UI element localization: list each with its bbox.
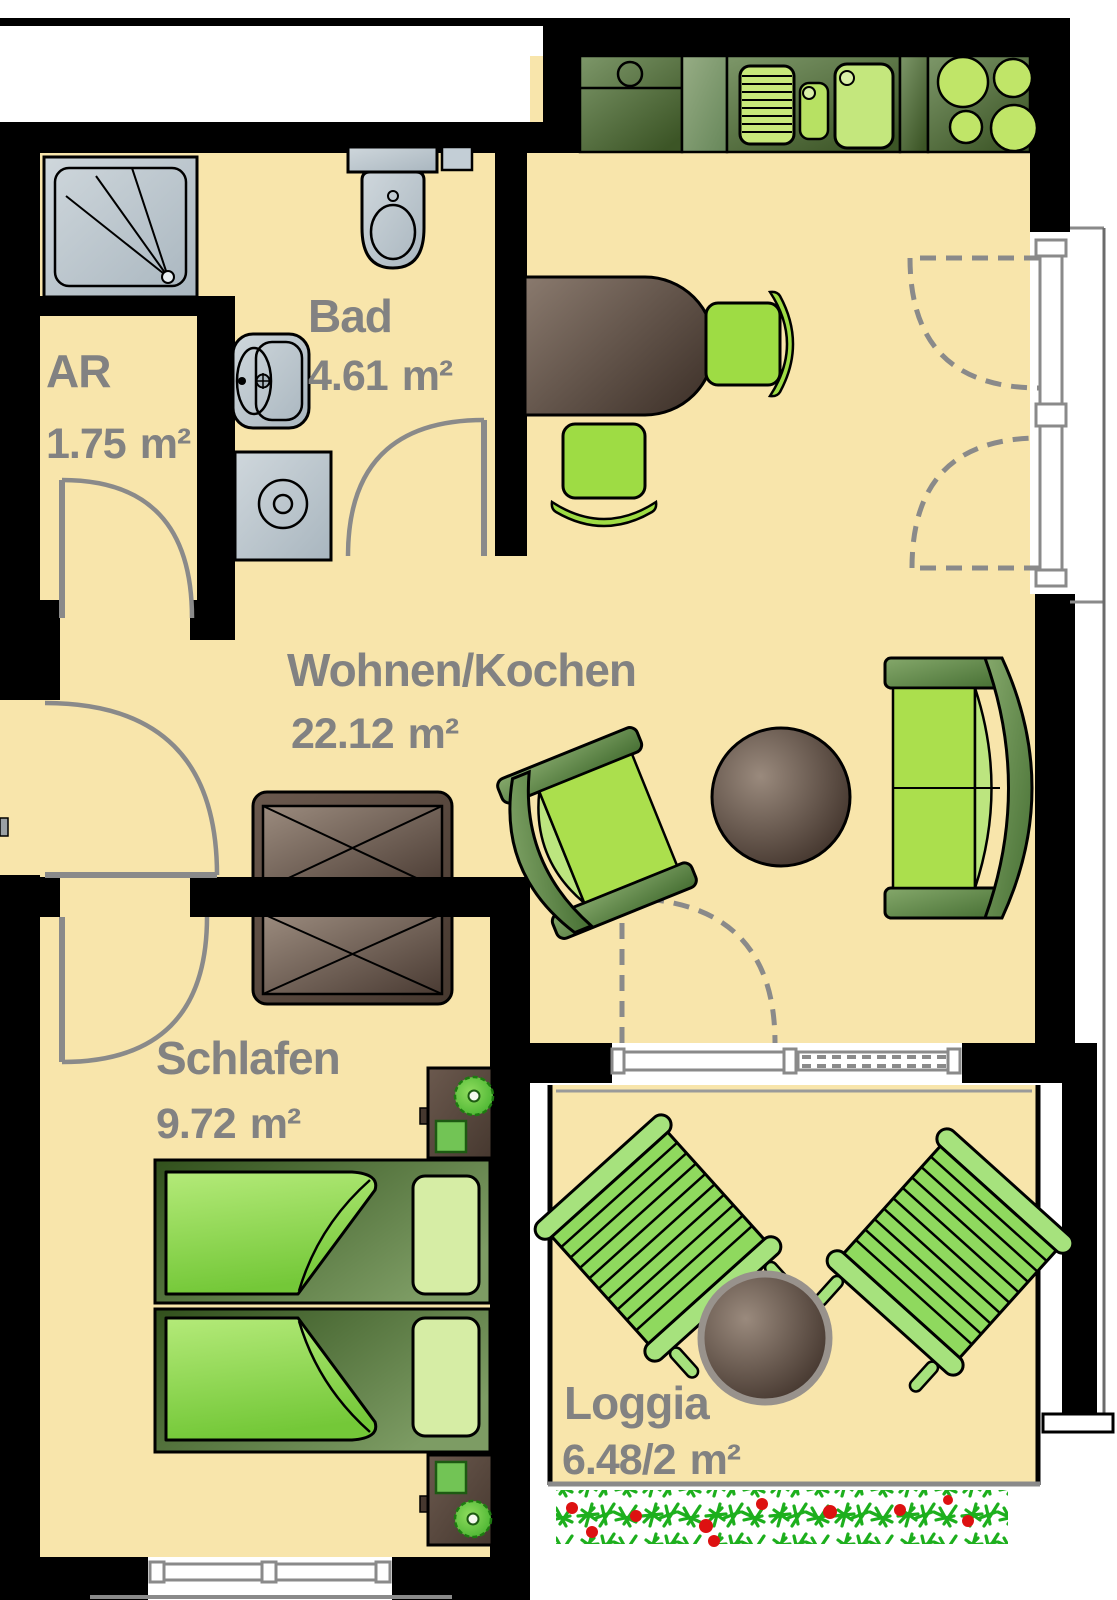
flower-red-3 (699, 1519, 713, 1533)
room-schlafen-area-unit: m² (250, 1100, 301, 1148)
room-ar-name: AR (46, 345, 111, 397)
sink-large-drain (840, 71, 854, 85)
loggia-frame-end-left (612, 1049, 624, 1073)
entrance-outside-handle (0, 818, 8, 836)
washbasin-tap-small (238, 377, 246, 385)
room-wohnen-area-value: 22.12 (291, 710, 394, 758)
wall-entrance-jamb (40, 640, 60, 700)
wall-ar-bottom-left (0, 600, 60, 640)
flower-red-7 (894, 1504, 906, 1516)
loggia-frame-mid (784, 1049, 796, 1073)
window-schlafen-mullion-mid (262, 1562, 276, 1582)
flower-red-10 (586, 1526, 598, 1538)
sofa-arm-top (885, 658, 1000, 688)
sofa-arm-bottom (885, 888, 1000, 918)
kitchen-counter (580, 56, 1037, 152)
counter-divider (682, 56, 727, 152)
floor-plan: AR 1.75m² Bad 4.61m² Wohnen/Kochen 22.12… (0, 0, 1117, 1600)
loggia-table (701, 1274, 829, 1402)
flower-red-5 (756, 1498, 768, 1510)
loggia-frame-end-right (948, 1049, 960, 1073)
hob-burner-1 (938, 57, 988, 107)
wall-left-lower (0, 875, 40, 1600)
dining-chair-bottom-seat (563, 424, 645, 498)
shower-drain (162, 271, 174, 283)
wall-kitchen-top (543, 18, 1070, 58)
room-bad-area: 4.61m² (308, 352, 453, 400)
room-loggia-area-value: 6.48/2 (562, 1436, 676, 1484)
room-loggia-area-unit: m² (690, 1436, 741, 1484)
wall-wohnen-bottom-left (490, 1043, 618, 1083)
flower-red-4 (708, 1535, 720, 1547)
wall-wohnen-bottom-right (958, 1043, 1097, 1083)
toilet-shelf (442, 147, 472, 170)
flower-red-6 (823, 1505, 837, 1519)
shower (44, 157, 197, 297)
room-wohnen-area: 22.12m² (291, 710, 459, 758)
wall-bad-right (495, 153, 527, 556)
washbasin (233, 334, 309, 428)
flower-red-9 (962, 1515, 974, 1527)
nightstand-2-plant-stem (468, 1514, 479, 1525)
wall-ar-bad-divider (197, 296, 235, 640)
nightstand-1-plant-stem (469, 1091, 480, 1102)
wall-kitchen-corner (543, 18, 581, 153)
wall-schlafen-jamb (40, 877, 60, 917)
flower-red-8 (943, 1495, 953, 1505)
room-wohnen-area-unit: m² (408, 710, 459, 758)
loggia-pier-cap (1043, 1414, 1113, 1432)
washing-machine (235, 452, 331, 560)
window-east-sill-caps (1070, 228, 1104, 602)
sofa (885, 658, 1032, 918)
nightstand-1-book (436, 1121, 466, 1152)
window-east-mullion-mid (1036, 404, 1066, 426)
room-ar-area-value: 1.75 (46, 420, 126, 468)
hob-burner-3 (950, 111, 982, 143)
coffee-table (712, 728, 850, 866)
window-schlafen-mullion-left (150, 1562, 164, 1582)
counter-segment-2 (900, 56, 928, 152)
hob (928, 56, 1037, 152)
bed-1-pillow (413, 1176, 479, 1294)
window-east-mullion-bottom (1036, 570, 1066, 586)
room-bad-area-value: 4.61 (308, 352, 388, 400)
room-loggia-name: Loggia (564, 1377, 710, 1429)
counter-segment-1 (580, 56, 682, 152)
flower-box-greenery (556, 1490, 1008, 1544)
sink-small-drain (803, 87, 815, 99)
toilet-bowl (362, 172, 424, 268)
room-schlafen-area: 9.72m² (156, 1100, 301, 1148)
nightstand-1 (420, 1068, 493, 1158)
dining-chair-right (706, 292, 793, 396)
hob-burner-2 (994, 59, 1032, 97)
flower-red-1 (566, 1502, 578, 1514)
bed-1 (155, 1160, 490, 1303)
wall-shower-bottom (40, 296, 197, 316)
washing-machine-body (235, 452, 331, 560)
dining-chair-right-seat (706, 303, 780, 385)
window-schlafen-mullion-right (376, 1562, 390, 1582)
room-schlafen-name: Schlafen (156, 1032, 340, 1084)
room-bad-area-unit: m² (402, 352, 453, 400)
floor-entrance-threshold (0, 700, 40, 875)
hob-burner-4 (991, 105, 1037, 151)
wall-ar-bottom-stub (190, 600, 235, 640)
dining-table (525, 277, 714, 415)
wall-schlafen-top (190, 877, 490, 917)
nightstand-2 (420, 1455, 492, 1545)
toilet-cistern (348, 147, 437, 172)
bed-2 (155, 1309, 490, 1452)
room-loggia-area: 6.48/2m² (562, 1436, 741, 1484)
wall-neighbor-line (0, 18, 543, 26)
loggia-door-frame (620, 1052, 788, 1070)
room-wohnen-name: Wohnen/Kochen (287, 644, 636, 696)
flower-boxes (556, 1490, 1008, 1547)
wall-schlafen-right (490, 877, 530, 1600)
room-schlafen-area-value: 9.72 (156, 1100, 236, 1148)
bed-2-pillow (413, 1318, 479, 1436)
nightstand-2-book (436, 1462, 466, 1493)
room-ar-area: 1.75m² (46, 420, 191, 468)
wall-bottom-left (0, 1557, 150, 1600)
flower-red-2 (630, 1510, 642, 1522)
room-ar-area-unit: m² (140, 420, 191, 468)
window-east-mullion-top (1036, 240, 1066, 256)
room-bad-name: Bad (308, 290, 392, 342)
wall-bottom-right (390, 1557, 530, 1600)
wall-right-mid (1035, 594, 1075, 1046)
